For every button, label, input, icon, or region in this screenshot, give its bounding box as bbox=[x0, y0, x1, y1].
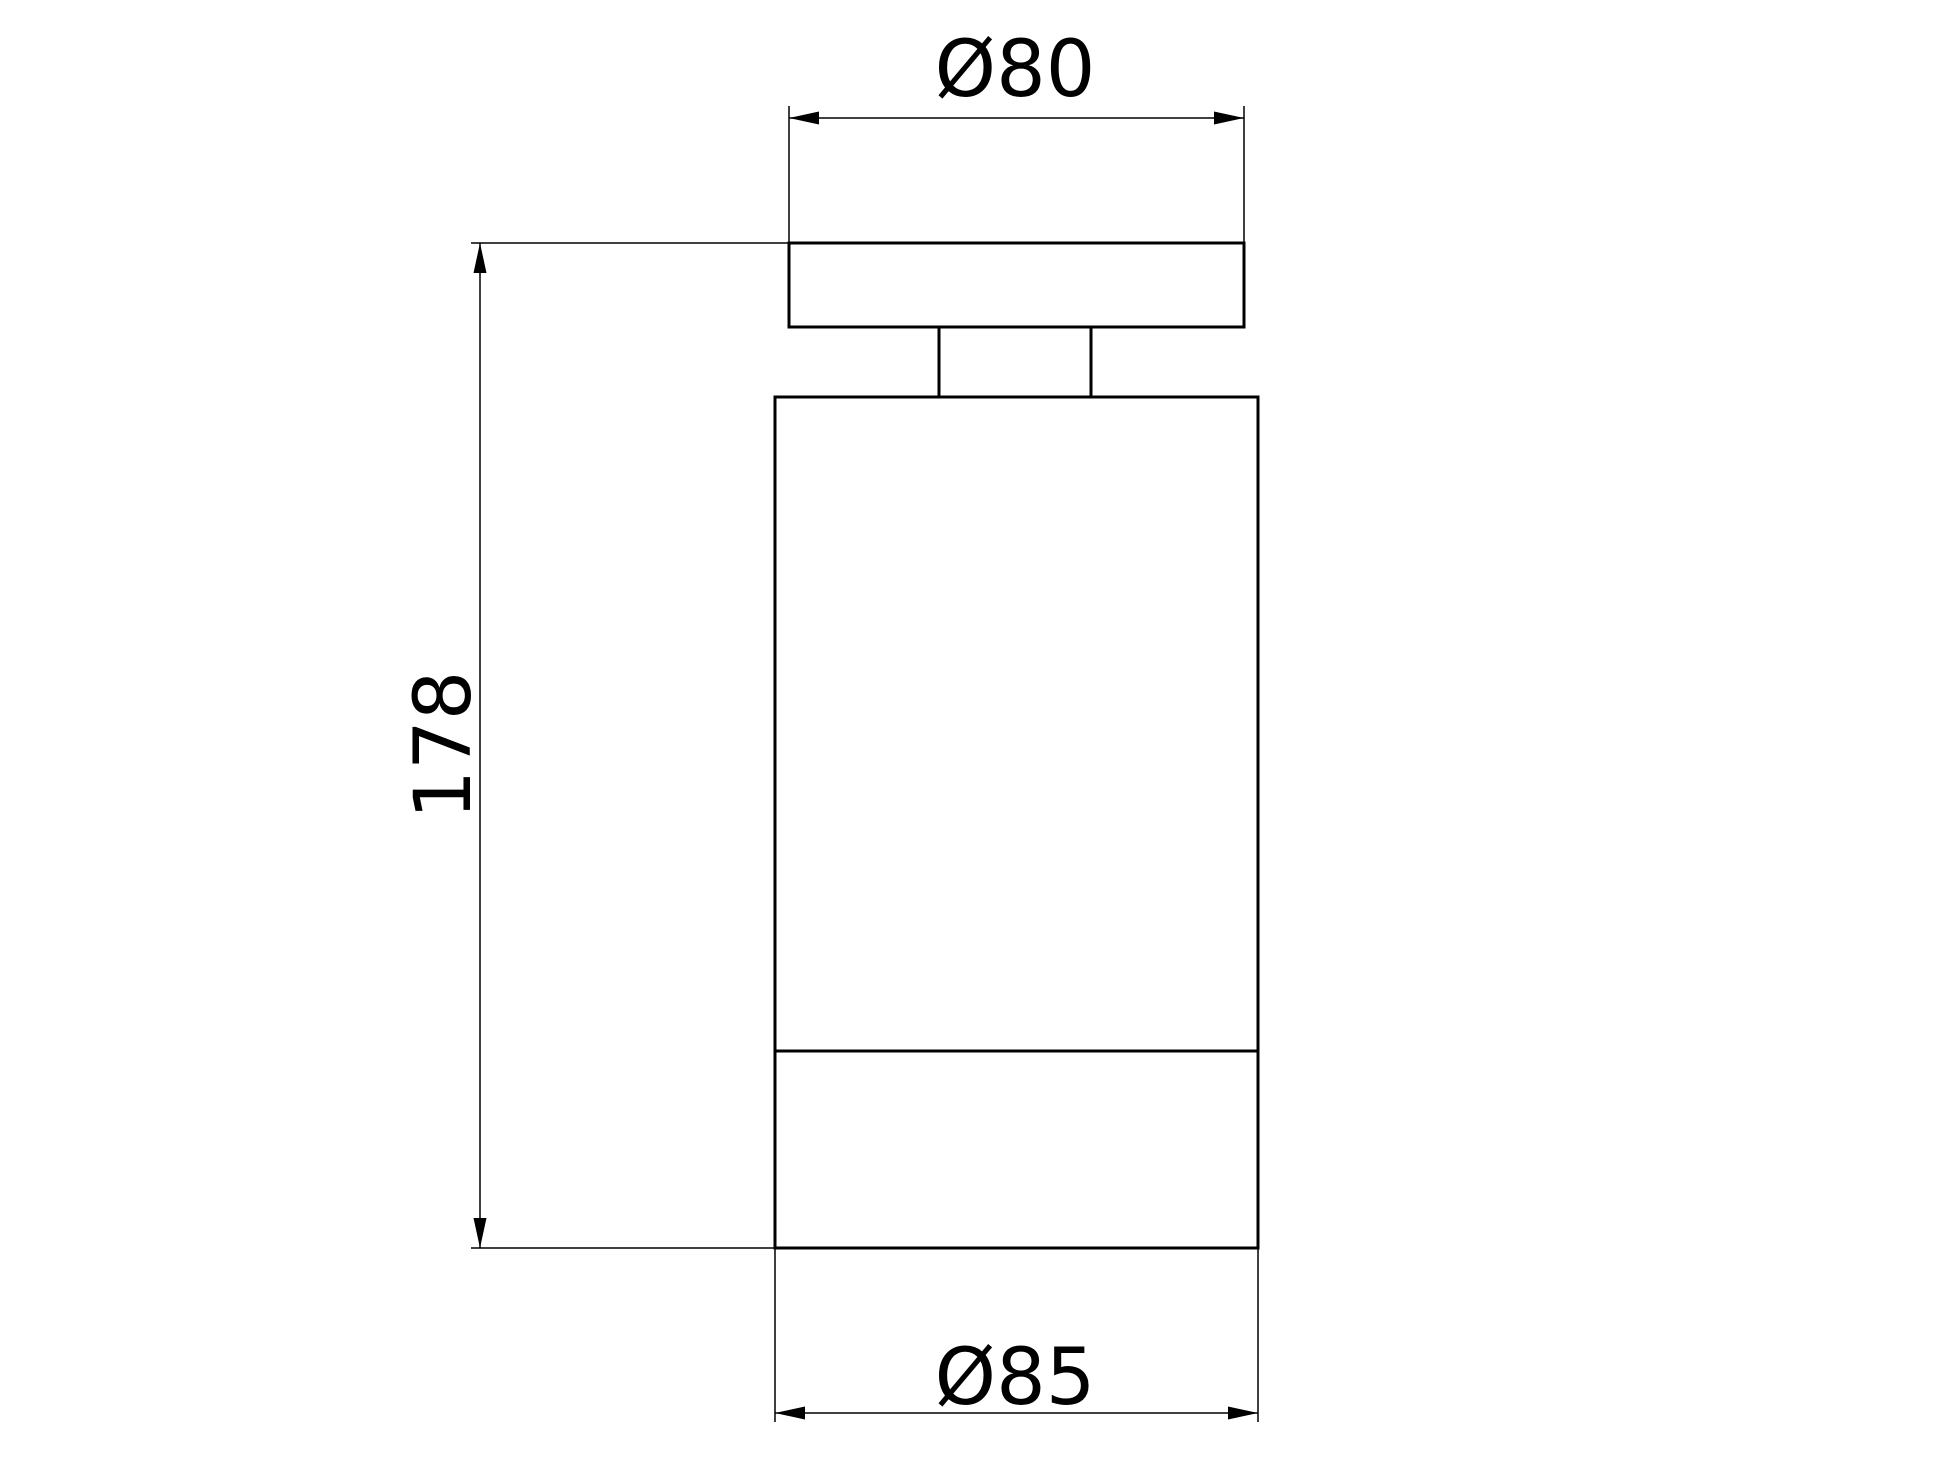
arrowhead-bottom-icon bbox=[474, 1218, 487, 1248]
fixture-outline bbox=[775, 243, 1258, 1248]
dimension-bottom-diameter: Ø85 bbox=[775, 1248, 1258, 1423]
arrowhead-left-icon bbox=[789, 112, 819, 125]
mounting-plate-outline bbox=[789, 243, 1244, 327]
dimension-overall-height: 178 bbox=[399, 243, 789, 1248]
dimension-label-top-diameter: Ø80 bbox=[935, 25, 1096, 115]
dimension-top-diameter: Ø80 bbox=[789, 25, 1244, 243]
arrowhead-top-icon bbox=[474, 243, 487, 273]
dimension-label-overall-height: 178 bbox=[399, 671, 489, 820]
arrowhead-right-icon bbox=[1228, 1407, 1258, 1420]
arrowhead-left-icon bbox=[775, 1407, 805, 1420]
lamp-body-outline bbox=[775, 397, 1258, 1248]
arrowhead-right-icon bbox=[1214, 112, 1244, 125]
dimension-drawing-canvas: Ø80 178 Ø85 bbox=[0, 0, 1945, 1458]
technical-drawing-page: Ø80 178 Ø85 bbox=[0, 0, 1945, 1458]
dimension-label-bottom-diameter: Ø85 bbox=[935, 1333, 1096, 1423]
